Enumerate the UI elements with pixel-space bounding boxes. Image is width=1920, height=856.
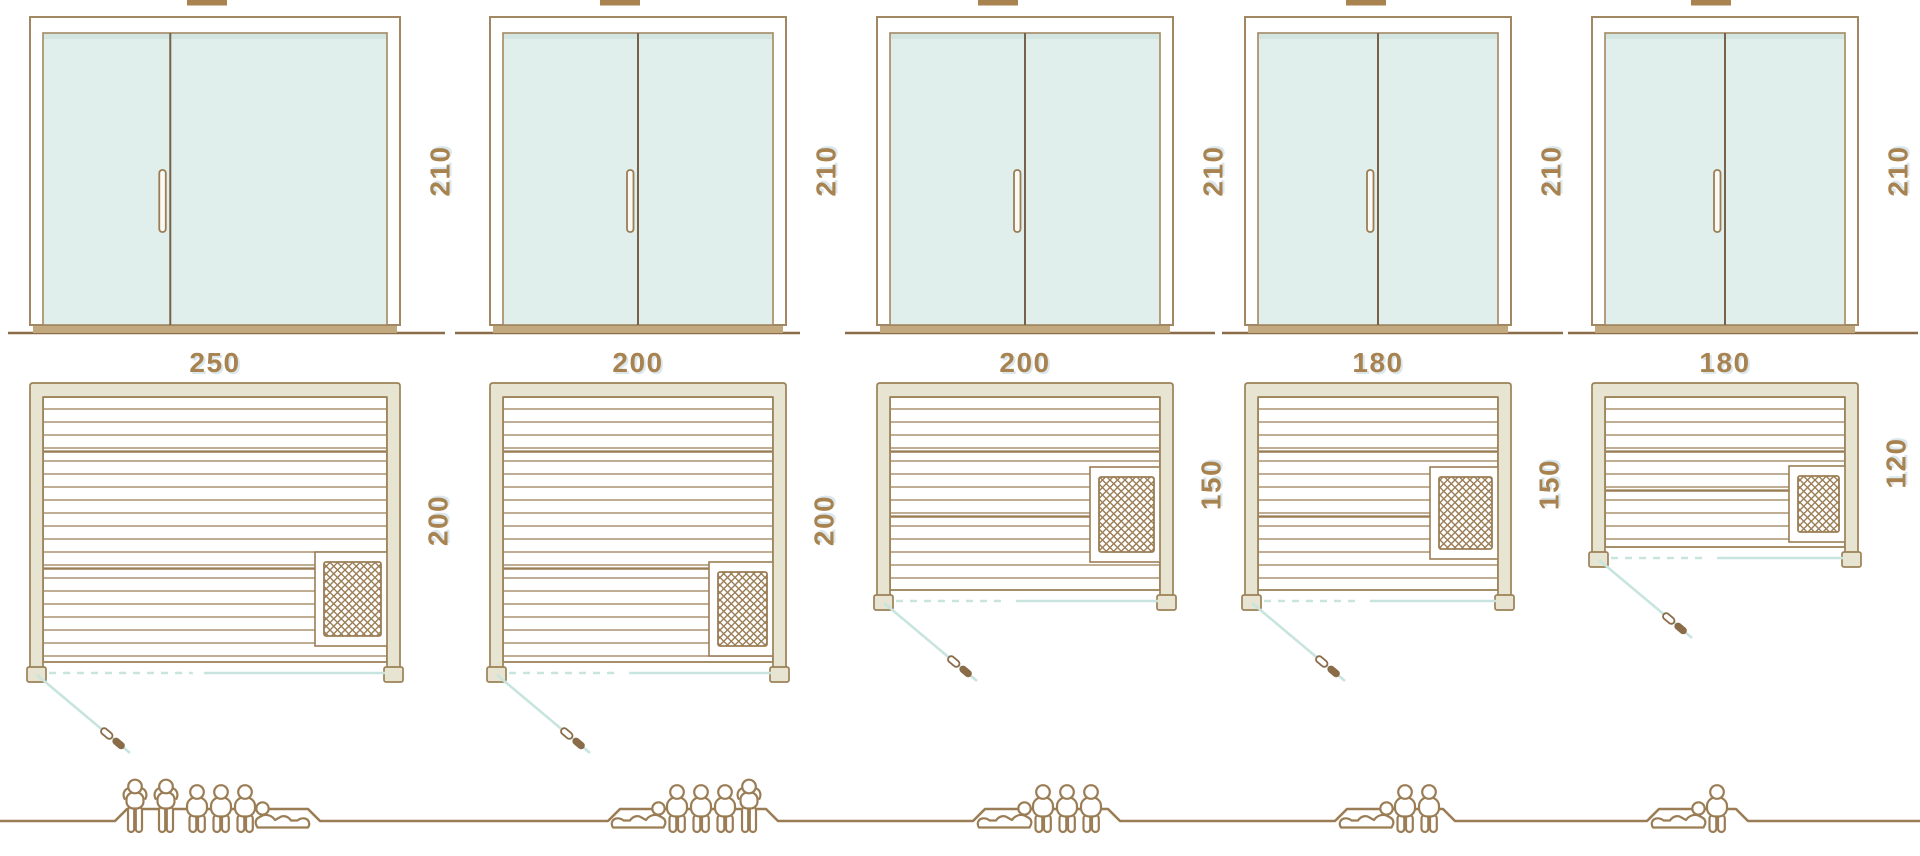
glass-top-shade <box>44 34 386 39</box>
cropped-top-mark <box>187 0 227 6</box>
door-height-label: 210 <box>1536 145 1567 196</box>
cropped-top-mark <box>1691 0 1731 6</box>
door-threshold <box>880 325 1170 333</box>
width-dimension-label: 250 <box>189 347 240 378</box>
wall-post-right <box>1842 552 1861 567</box>
door-threshold <box>33 325 397 333</box>
heater <box>1789 466 1847 542</box>
width-dimension-label: 180 <box>1352 347 1403 378</box>
person-sitting <box>1395 785 1415 832</box>
heater-grate <box>1798 476 1839 532</box>
person-lying <box>612 802 666 827</box>
door-height-label: 210 <box>1883 145 1914 196</box>
door-elevation: 210 <box>877 17 1229 333</box>
wall-post-right <box>384 667 403 682</box>
sauna-unit-1: 210250200 <box>27 17 456 753</box>
capacity-figures-unit-2 <box>612 780 761 832</box>
plan-depth-label: 200 <box>809 495 840 546</box>
floor-plan <box>1589 383 1861 638</box>
person-lying <box>978 802 1032 827</box>
capacity-figures-unit-1 <box>124 780 310 832</box>
door-handle <box>1014 170 1021 232</box>
person-sitting <box>235 785 255 832</box>
door-elevation: 210 <box>1245 17 1567 333</box>
floor-plan <box>1242 383 1514 681</box>
person-sitting <box>691 785 711 832</box>
heater-grate <box>1099 477 1154 552</box>
heater-grate <box>324 562 381 636</box>
door-elevation: 210 <box>30 17 456 333</box>
heater-grate <box>718 572 767 646</box>
door-handle <box>1714 170 1721 232</box>
person-sitting <box>667 785 687 832</box>
person-sitting <box>187 785 207 832</box>
door-threshold <box>1248 325 1508 333</box>
floor-plan <box>487 383 789 753</box>
cropped-top-mark <box>1346 0 1386 6</box>
door-elevation: 210 <box>1592 17 1914 333</box>
sauna-unit-3: 210200150 <box>874 17 1229 681</box>
diagram-canvas: 2102502002102002002102001502101801502101… <box>0 0 1920 856</box>
person-standing <box>738 780 761 832</box>
person-sitting <box>1419 785 1439 832</box>
door-threshold <box>1595 325 1855 333</box>
sauna-unit-4: 210180150 <box>1242 17 1567 681</box>
person-lying <box>1652 802 1706 827</box>
width-dimension-label: 200 <box>612 347 663 378</box>
heater <box>1430 467 1500 559</box>
person-sitting <box>211 785 231 832</box>
plan-depth-label: 200 <box>423 495 454 546</box>
person-sitting <box>1081 785 1101 832</box>
door-height-label: 210 <box>425 145 456 196</box>
sauna-unit-2: 210200200 <box>487 17 842 753</box>
plan-depth-label: 150 <box>1196 459 1227 510</box>
door-height-label: 210 <box>1198 145 1229 196</box>
person-sitting <box>1707 785 1727 832</box>
wall-post-right <box>1157 595 1176 610</box>
person-sitting <box>1033 785 1053 832</box>
heater <box>709 562 775 656</box>
person-standing <box>124 780 147 832</box>
door-handle <box>159 170 166 232</box>
person-standing <box>155 780 178 832</box>
heater-grate <box>1439 477 1492 549</box>
door-glass <box>43 33 387 325</box>
cropped-top-mark <box>600 0 640 6</box>
floor-plan <box>874 383 1176 681</box>
door-height-label: 210 <box>811 145 842 196</box>
door-elevation: 210 <box>490 17 842 333</box>
top-crop-marks <box>187 0 1731 6</box>
door-threshold <box>493 325 783 333</box>
cropped-top-mark <box>978 0 1018 6</box>
width-dimension-label: 200 <box>999 347 1050 378</box>
person-sitting <box>715 785 735 832</box>
plan-depth-label: 120 <box>1881 437 1912 488</box>
heater <box>1090 467 1162 562</box>
sauna-unit-5: 210180120 <box>1589 17 1914 638</box>
plan-depth-label: 150 <box>1534 459 1565 510</box>
width-dimension-label: 180 <box>1699 347 1750 378</box>
floor-plan <box>27 383 403 753</box>
wall-post-right <box>1495 595 1514 610</box>
door-handle <box>1367 170 1374 232</box>
person-lying <box>1340 802 1394 827</box>
door-handle <box>627 170 634 232</box>
sauna-dimensions-diagram: 2102502002102002002102001502101801502101… <box>0 0 1920 856</box>
person-lying <box>256 802 310 827</box>
heater <box>315 552 389 646</box>
person-sitting <box>1057 785 1077 832</box>
wall-post-right <box>770 667 789 682</box>
